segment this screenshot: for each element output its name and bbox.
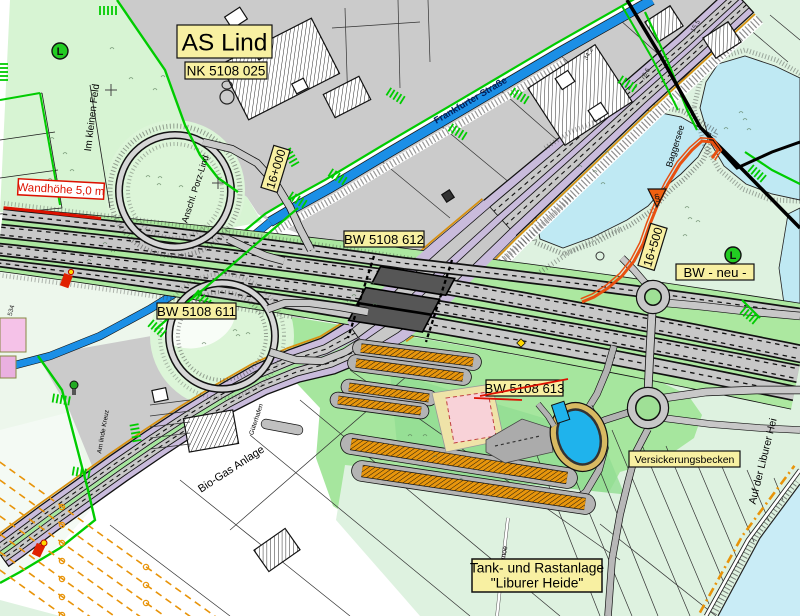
svg-text:AS Lind: AS Lind [182, 29, 268, 56]
svg-text:Tank- und Rastanlage: Tank- und Rastanlage [470, 561, 605, 576]
svg-text:"Liburer Heide": "Liburer Heide" [491, 576, 584, 591]
svg-text:BW - neu -: BW - neu - [683, 265, 746, 280]
svg-text:L: L [57, 46, 64, 58]
svg-text:NK 5108 025: NK 5108 025 [187, 63, 266, 78]
svg-text:L: L [730, 250, 737, 262]
svg-text:BW 5108 612: BW 5108 612 [344, 232, 424, 247]
svg-text:Versickerungsbecken: Versickerungsbecken [635, 454, 735, 466]
svg-text:BW 5108 611: BW 5108 611 [157, 304, 236, 319]
